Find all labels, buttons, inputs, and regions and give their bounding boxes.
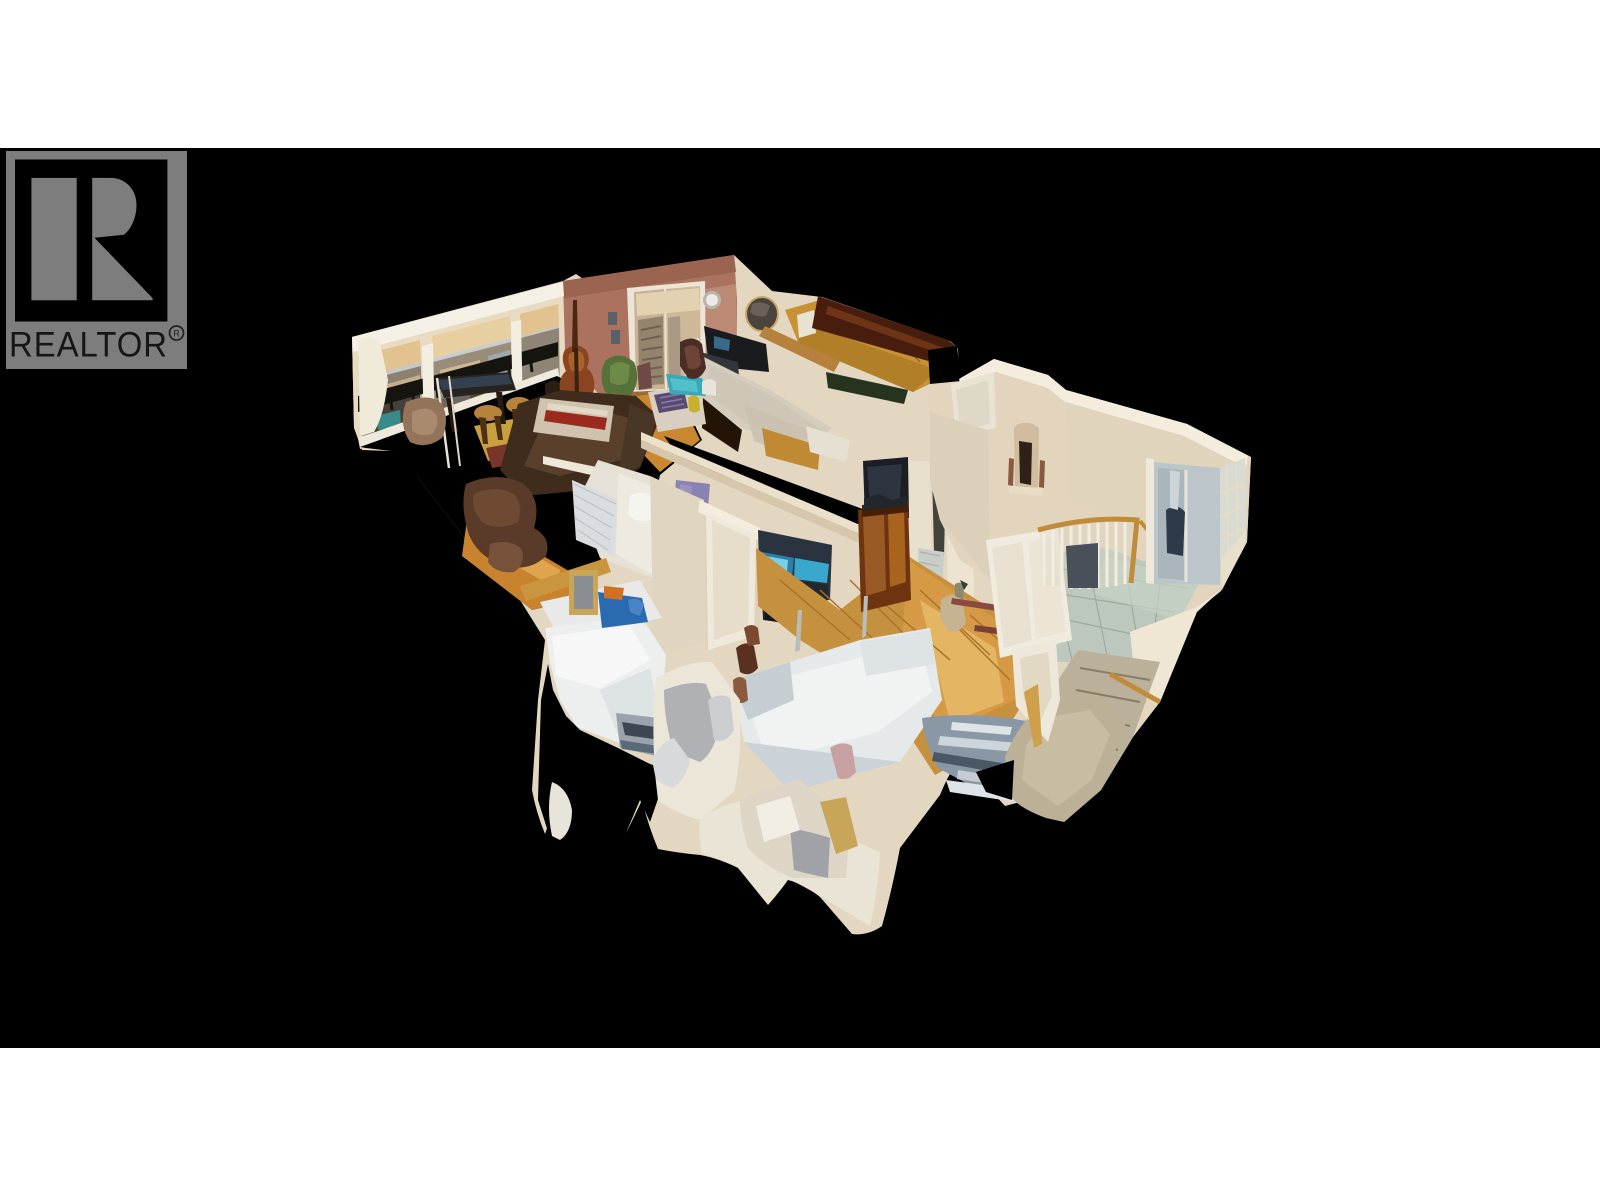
svg-text:REALTOR: REALTOR (9, 326, 168, 365)
svg-text:R: R (173, 329, 180, 339)
